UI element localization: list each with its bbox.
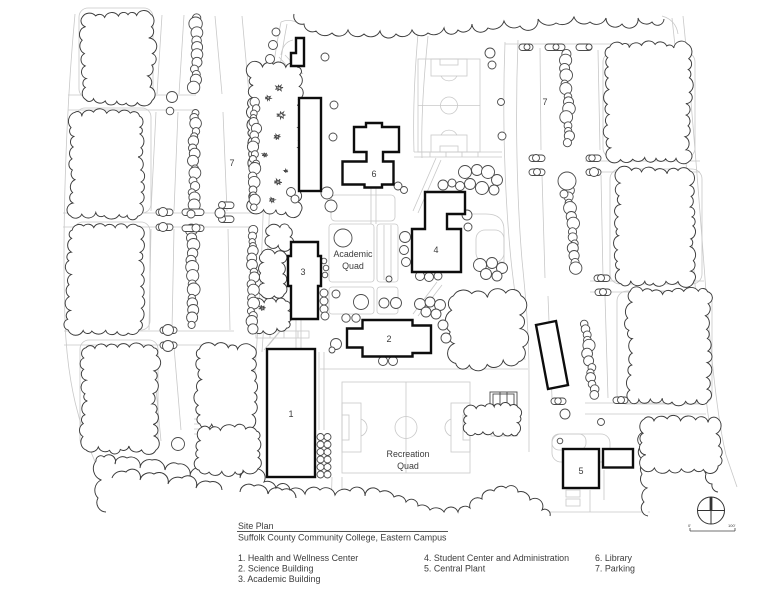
svg-text:4. Student Center and Administ: 4. Student Center and Administration <box>424 553 569 563</box>
svg-text:4: 4 <box>433 245 438 255</box>
svg-text:5. Central Plant: 5. Central Plant <box>424 564 486 574</box>
svg-text:6: 6 <box>371 169 376 179</box>
svg-text:100': 100' <box>728 523 736 528</box>
svg-text:7: 7 <box>542 97 547 107</box>
svg-text:Quad: Quad <box>342 261 364 271</box>
svg-text:Site Plan: Site Plan <box>238 521 274 531</box>
svg-text:Quad: Quad <box>397 461 419 471</box>
svg-text:3: 3 <box>300 267 305 277</box>
svg-text:7: 7 <box>229 158 234 168</box>
svg-text:2. Science Building: 2. Science Building <box>238 564 314 574</box>
svg-text:Recreation: Recreation <box>387 449 430 459</box>
svg-text:Academic: Academic <box>334 249 374 259</box>
svg-text:1: 1 <box>288 409 293 419</box>
svg-text:5: 5 <box>578 466 583 476</box>
svg-text:3. Academic Building: 3. Academic Building <box>238 574 320 584</box>
svg-text:0': 0' <box>688 523 691 528</box>
svg-text:6. Library: 6. Library <box>595 553 633 563</box>
svg-text:Suffolk County Community Colle: Suffolk County Community College, Easter… <box>238 533 447 543</box>
svg-text:2: 2 <box>386 334 391 344</box>
svg-text:1. Health and Wellness Center: 1. Health and Wellness Center <box>238 553 358 563</box>
svg-text:7. Parking: 7. Parking <box>595 564 635 574</box>
